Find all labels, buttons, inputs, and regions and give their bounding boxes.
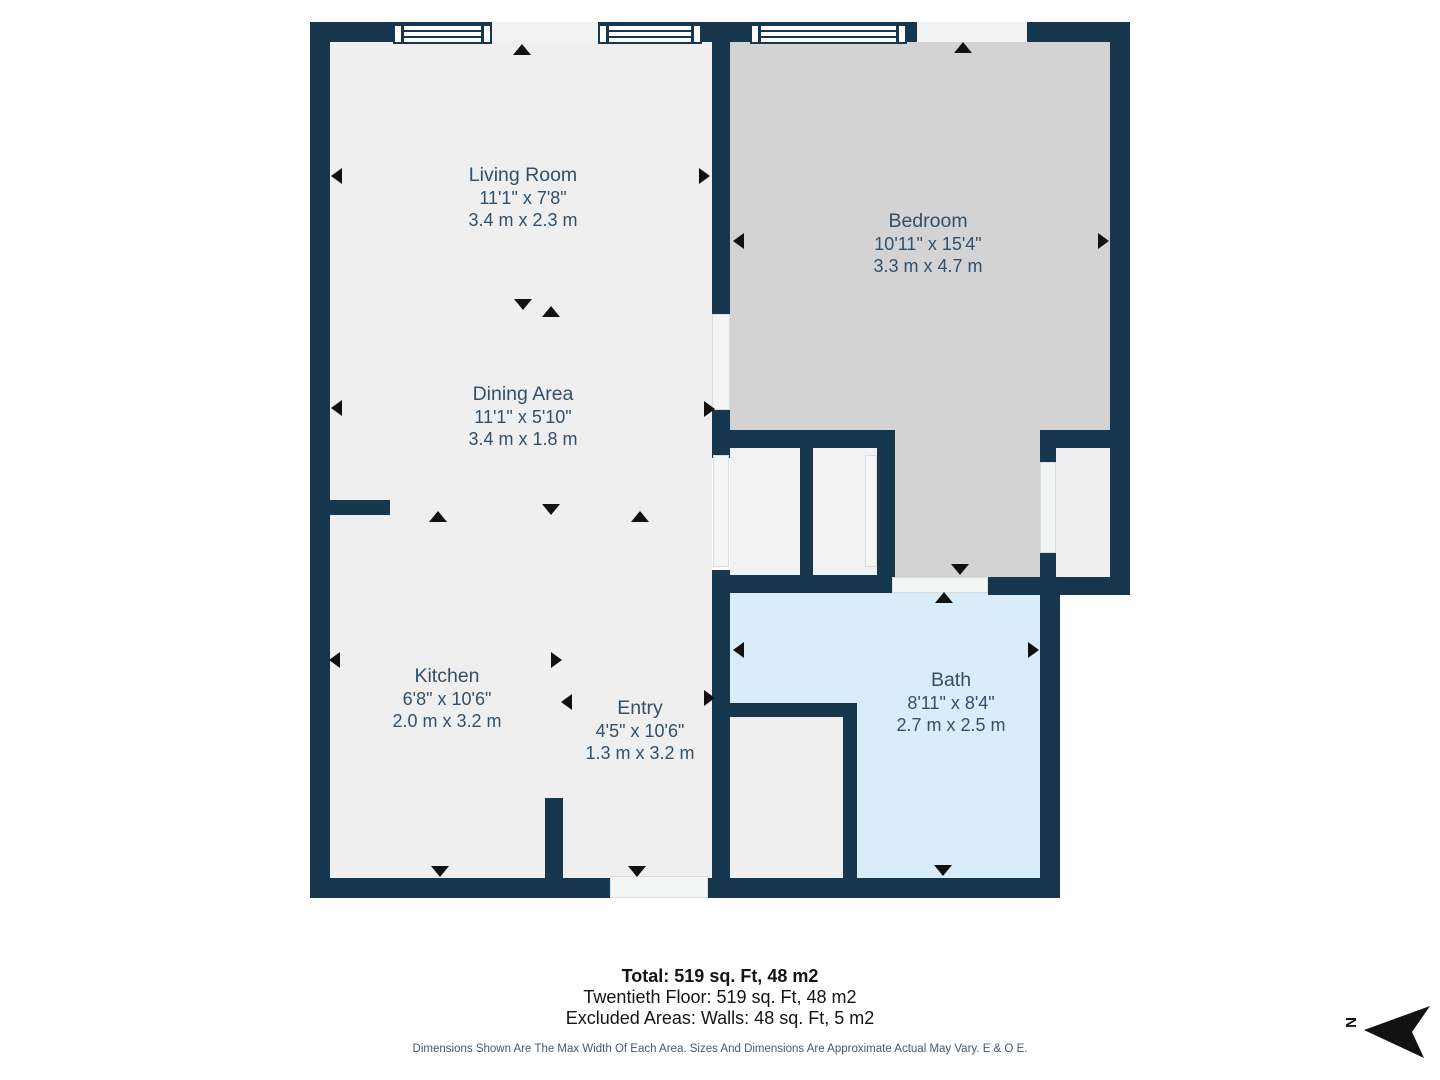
measure-marker (431, 866, 449, 877)
room-dim-imperial: 11'1" x 7'8" (403, 188, 643, 210)
room-dim-imperial: 4'5" x 10'6" (520, 721, 760, 743)
compass-arrow-icon (1362, 1004, 1434, 1064)
wall-left (310, 22, 330, 898)
measure-marker (429, 511, 447, 522)
measure-marker (954, 42, 972, 53)
summary-total: Total: 519 sq. Ft, 48 m2 (0, 966, 1440, 987)
wall-closet-top (712, 430, 877, 448)
wall-right-closet-top (1040, 430, 1110, 448)
room-dim-imperial: 8'11" x 8'4" (831, 693, 1071, 715)
window-cap (896, 26, 899, 42)
room-name: Bath (831, 668, 1071, 693)
wall-bedroom-ext-left (877, 430, 895, 593)
window-living-right (598, 24, 702, 44)
room-name: Dining Area (403, 382, 643, 407)
summary-floor: Twentieth Floor: 519 sq. Ft, 48 m2 (0, 987, 1440, 1008)
window-bedroom (750, 24, 907, 44)
door-closet-right (1040, 462, 1056, 553)
door-closet-left (713, 455, 729, 567)
room-label-bath: Bath 8'11" x 8'4" 2.7 m x 2.5 m (831, 668, 1071, 736)
window-cap (481, 26, 484, 42)
window-living-left (393, 24, 492, 44)
room-label-entry: Entry 4'5" x 10'6" 1.3 m x 3.2 m (520, 696, 760, 764)
measure-marker (1028, 642, 1039, 658)
area-summary: Total: 519 sq. Ft, 48 m2 Twentieth Floor… (0, 966, 1440, 1029)
room-dim-metric: 1.3 m x 3.2 m (520, 743, 760, 765)
floor-plan-page: Living Room 11'1" x 7'8" 3.4 m x 2.3 m B… (0, 0, 1440, 1080)
room-name: Kitchen (327, 664, 567, 689)
measure-marker (1098, 233, 1109, 249)
wall-bath-right (1040, 595, 1060, 898)
room-dim-metric: 3.4 m x 2.3 m (403, 210, 643, 232)
summary-excluded: Excluded Areas: Walls: 48 sq. Ft, 5 m2 (0, 1008, 1440, 1029)
wall-closet-divider (800, 448, 813, 575)
compass-north-label: N (1343, 1017, 1360, 1028)
measure-marker (628, 866, 646, 877)
room-dim-imperial: 10'11" x 15'4" (808, 234, 1048, 256)
window-glass (404, 30, 481, 38)
wall-entry-stub (545, 798, 563, 878)
room-dim-metric: 2.7 m x 2.5 m (831, 715, 1071, 737)
measure-marker (733, 233, 744, 249)
measure-marker (331, 400, 342, 416)
door-bedroom (712, 314, 730, 410)
measure-marker (542, 504, 560, 515)
measure-marker (331, 168, 342, 184)
floor-closet-left (730, 448, 800, 575)
wall-kitchen-stub (330, 500, 390, 515)
floor-closet-right (1056, 448, 1110, 577)
disclaimer-text: Dimensions Shown Are The Max Width Of Ea… (0, 1043, 1440, 1055)
measure-marker (733, 642, 744, 658)
window-glass (761, 30, 896, 38)
room-label-bedroom: Bedroom 10'11" x 15'4" 3.3 m x 4.7 m (808, 209, 1048, 277)
room-dim-metric: 3.4 m x 1.8 m (403, 429, 643, 451)
floor-bedroom-extension (883, 430, 1040, 577)
window-glass (609, 30, 691, 38)
room-name: Entry (520, 696, 760, 721)
measure-marker (631, 511, 649, 522)
room-label-dining-area: Dining Area 11'1" x 5'10" 3.4 m x 1.8 m (403, 382, 643, 450)
room-name: Bedroom (808, 209, 1048, 234)
door-bath (892, 577, 988, 593)
door-closet-middle (865, 455, 877, 567)
room-dim-imperial: 11'1" x 5'10" (403, 407, 643, 429)
wall-closet-bottom (712, 575, 877, 593)
opening-top-bedroom (917, 22, 1027, 42)
measure-marker (514, 299, 532, 310)
room-dim-metric: 3.3 m x 4.7 m (808, 256, 1048, 278)
measure-marker (542, 306, 560, 317)
room-label-living-room: Living Room 11'1" x 7'8" 3.4 m x 2.3 m (403, 163, 643, 231)
measure-marker (699, 168, 710, 184)
window-cap (691, 26, 694, 42)
door-entry-front (610, 876, 708, 898)
wall-step-right (988, 577, 1130, 595)
room-name: Living Room (403, 163, 643, 188)
measure-marker (934, 865, 952, 876)
wall-central-upper (712, 42, 730, 314)
measure-marker (704, 401, 715, 417)
measure-marker (951, 564, 969, 575)
wall-right-upper (1110, 22, 1130, 595)
measure-marker (513, 44, 531, 55)
measure-marker (935, 592, 953, 603)
opening-top-living (492, 22, 598, 42)
